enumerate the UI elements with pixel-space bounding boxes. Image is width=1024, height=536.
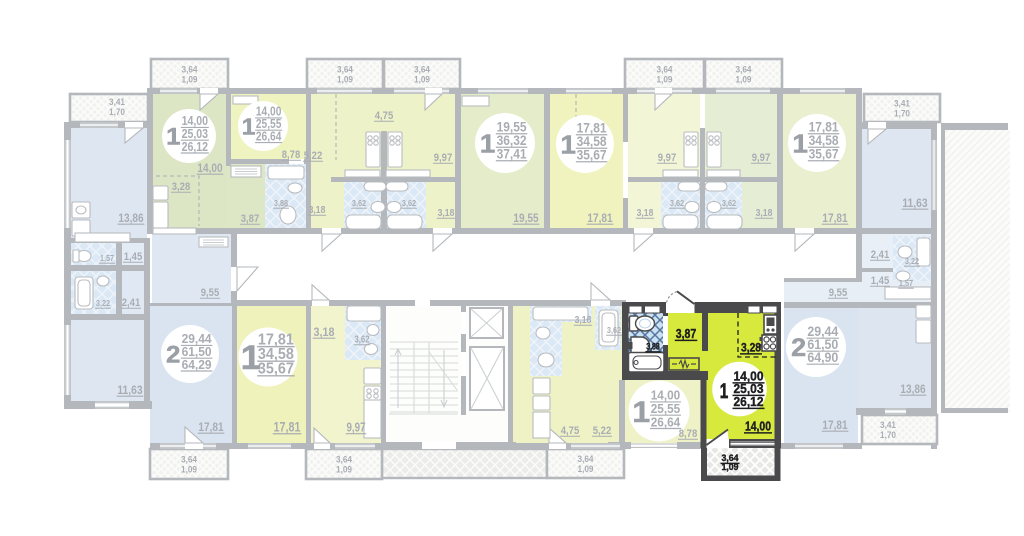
svg-text:17,81: 17,81	[587, 211, 612, 225]
svg-text:1,09: 1,09	[182, 75, 198, 85]
svg-text:3,28: 3,28	[172, 181, 190, 193]
svg-text:3,62: 3,62	[355, 335, 370, 346]
svg-text:5,22: 5,22	[593, 425, 611, 437]
svg-text:37,41: 37,41	[497, 146, 527, 162]
svg-text:3,41: 3,41	[109, 97, 125, 107]
svg-text:11,63: 11,63	[902, 196, 927, 210]
svg-text:3,62: 3,62	[670, 198, 685, 208]
svg-text:64,29: 64,29	[182, 357, 212, 372]
svg-text:3,64: 3,64	[578, 454, 594, 464]
svg-text:1: 1	[632, 396, 650, 429]
svg-text:1,70: 1,70	[109, 107, 125, 117]
svg-text:8,78: 8,78	[679, 428, 697, 440]
svg-text:19,55: 19,55	[513, 211, 538, 225]
svg-text:3,28: 3,28	[741, 343, 762, 355]
svg-text:1: 1	[166, 124, 180, 151]
svg-text:9,97: 9,97	[752, 152, 770, 164]
svg-text:3,64: 3,64	[181, 455, 197, 465]
svg-text:2,41: 2,41	[122, 297, 140, 309]
svg-text:3,18: 3,18	[309, 205, 326, 216]
svg-text:11,63: 11,63	[117, 383, 142, 397]
svg-text:1: 1	[480, 128, 496, 158]
svg-text:1: 1	[560, 129, 576, 159]
svg-text:1: 1	[242, 113, 256, 139]
svg-text:3,64: 3,64	[336, 455, 352, 465]
svg-text:3,87: 3,87	[241, 213, 259, 225]
svg-text:3,22: 3,22	[905, 256, 920, 266]
svg-text:3,88: 3,88	[646, 342, 660, 352]
svg-text:14,00: 14,00	[745, 419, 771, 434]
svg-text:3,18: 3,18	[637, 208, 654, 219]
svg-text:3,18: 3,18	[575, 315, 592, 326]
svg-text:3,41: 3,41	[880, 420, 896, 430]
svg-text:1,70: 1,70	[894, 109, 910, 119]
svg-text:2,41: 2,41	[871, 249, 889, 261]
svg-text:1,45: 1,45	[871, 275, 889, 287]
svg-text:1,09: 1,09	[336, 465, 352, 475]
svg-text:2: 2	[791, 334, 806, 362]
svg-text:1,45: 1,45	[124, 251, 142, 263]
svg-text:26,12: 26,12	[182, 139, 209, 154]
svg-text:5,22: 5,22	[304, 150, 322, 162]
svg-text:35,67: 35,67	[809, 146, 839, 162]
svg-text:3,18: 3,18	[756, 208, 773, 219]
svg-text:3,64: 3,64	[414, 65, 430, 75]
svg-text:1,09: 1,09	[337, 75, 353, 85]
svg-text:9,97: 9,97	[347, 420, 366, 435]
svg-text:3,87: 3,87	[676, 327, 697, 341]
svg-text:1: 1	[792, 128, 808, 158]
svg-text:9,97: 9,97	[658, 152, 676, 164]
svg-text:13,86: 13,86	[118, 211, 143, 225]
svg-text:17,81: 17,81	[274, 419, 301, 435]
svg-text:3,64: 3,64	[182, 65, 198, 75]
svg-text:9,97: 9,97	[434, 152, 452, 164]
svg-text:9,55: 9,55	[201, 287, 219, 299]
svg-text:1,57: 1,57	[100, 253, 115, 263]
svg-text:3,64: 3,64	[736, 65, 752, 75]
svg-text:1: 1	[720, 380, 729, 403]
svg-text:3,62: 3,62	[722, 198, 737, 208]
svg-text:1,70: 1,70	[880, 430, 896, 440]
svg-text:26,64: 26,64	[651, 414, 681, 429]
svg-text:9,55: 9,55	[829, 287, 847, 299]
svg-text:3,18: 3,18	[438, 208, 455, 219]
svg-text:4,75: 4,75	[375, 110, 393, 122]
svg-text:1,09: 1,09	[181, 465, 197, 475]
svg-text:1,09: 1,09	[722, 462, 739, 472]
svg-text:3,62: 3,62	[352, 198, 367, 208]
svg-text:3,88: 3,88	[274, 198, 289, 208]
svg-text:3,64: 3,64	[657, 65, 673, 75]
svg-text:17,81: 17,81	[822, 418, 847, 432]
svg-text:13,86: 13,86	[900, 382, 925, 396]
svg-text:1,09: 1,09	[736, 75, 752, 85]
svg-text:3,62: 3,62	[607, 325, 622, 335]
svg-text:1,09: 1,09	[414, 75, 430, 85]
svg-text:3,18: 3,18	[314, 325, 335, 339]
svg-text:1,09: 1,09	[578, 464, 594, 474]
svg-text:17,81: 17,81	[822, 211, 847, 225]
svg-text:26,12: 26,12	[734, 394, 764, 409]
svg-text:14,00: 14,00	[197, 161, 222, 175]
svg-text:35,67: 35,67	[258, 361, 294, 378]
svg-text:64,90: 64,90	[807, 350, 838, 365]
svg-text:2: 2	[166, 342, 180, 369]
svg-text:35,67: 35,67	[577, 147, 607, 163]
svg-text:3,41: 3,41	[894, 99, 910, 109]
svg-text:17,81: 17,81	[198, 420, 223, 434]
svg-text:3,22: 3,22	[96, 298, 111, 308]
svg-text:4,75: 4,75	[561, 425, 579, 437]
svg-text:3,64: 3,64	[337, 65, 353, 75]
svg-text:3,62: 3,62	[402, 198, 417, 208]
svg-text:1,09: 1,09	[657, 75, 673, 85]
svg-text:1,57: 1,57	[899, 278, 914, 288]
svg-text:26,64: 26,64	[256, 129, 282, 143]
svg-text:8,78: 8,78	[282, 149, 300, 161]
